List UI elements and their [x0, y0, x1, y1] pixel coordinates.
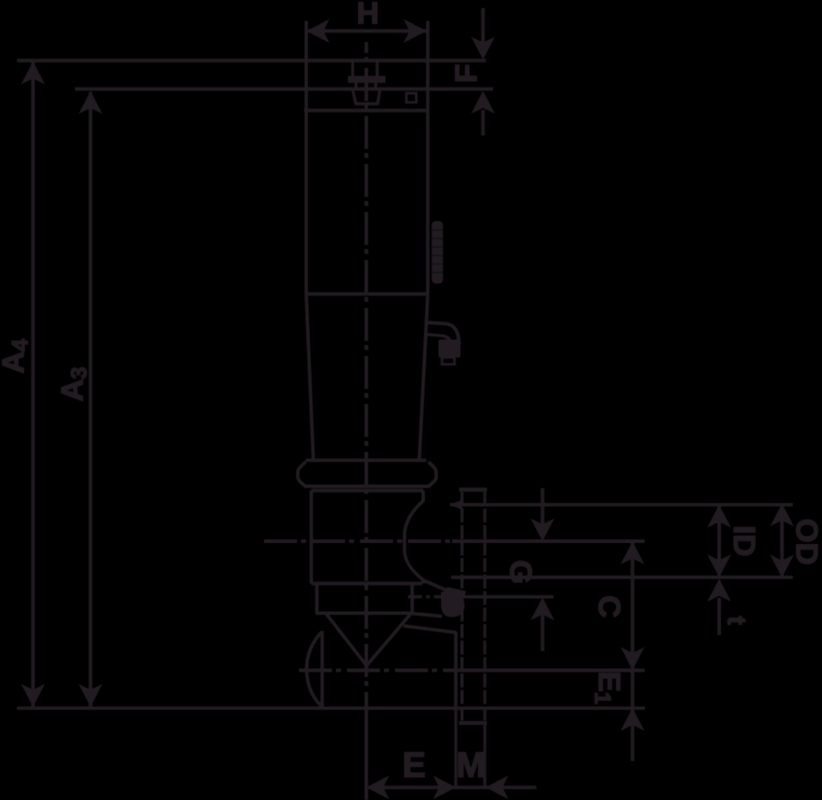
svg-text:H: H [357, 0, 379, 31]
svg-text:C: C [592, 595, 627, 617]
svg-text:t: t [722, 616, 752, 625]
svg-text:G: G [504, 560, 539, 584]
svg-text:A4: A4 [0, 338, 33, 373]
svg-text:F: F [449, 64, 484, 83]
svg-text:A3: A3 [55, 367, 92, 402]
svg-text:ID: ID [727, 526, 762, 557]
svg-text:OD: OD [789, 518, 822, 565]
svg-text:M: M [456, 746, 485, 785]
svg-text:E: E [402, 746, 425, 785]
svg-text:E1: E1 [590, 671, 627, 704]
